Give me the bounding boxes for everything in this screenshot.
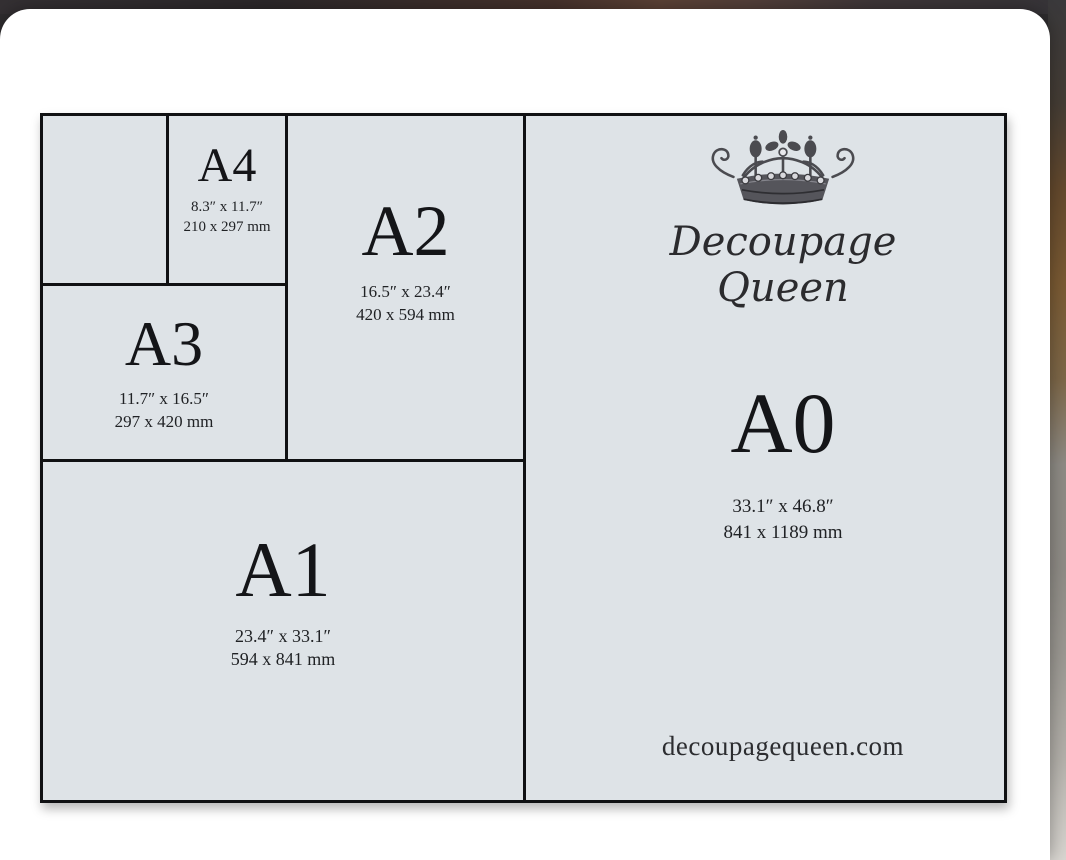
cell-a1: A1 23.4″ x 33.1″ 594 x 841 mm [43, 462, 523, 800]
product-image-card: A4 8.3″ x 11.7″ 210 x 297 mm A3 11.7″ x … [0, 9, 1050, 860]
a3-size-label: A3 [125, 312, 203, 376]
a4-mm: 210 x 297 mm [183, 218, 270, 238]
screen: A4 8.3″ x 11.7″ 210 x 297 mm A3 11.7″ x … [0, 0, 1066, 860]
a3-dimensions: 11.7″ x 16.5″ 297 x 420 mm [115, 388, 214, 432]
cell-a2: A2 16.5″ x 23.4″ 420 x 594 mm [288, 116, 523, 459]
a0-inches: 33.1″ x 46.8″ [723, 494, 842, 520]
cell-a3: A3 11.7″ x 16.5″ 297 x 420 mm [43, 286, 285, 459]
a1-dimensions: 23.4″ x 33.1″ 594 x 841 mm [231, 625, 336, 672]
a1-inches: 23.4″ x 33.1″ [231, 625, 336, 648]
cell-a4: A4 8.3″ x 11.7″ 210 x 297 mm [169, 116, 285, 283]
brand-website: decoupagequeen.com [662, 731, 904, 762]
paper-size-chart: A4 8.3″ x 11.7″ 210 x 297 mm A3 11.7″ x … [40, 113, 1007, 803]
a4-dimensions: 8.3″ x 11.7″ 210 x 297 mm [183, 198, 270, 237]
brand-name-line1: Decoupage [670, 222, 897, 262]
background-right-strip [1048, 0, 1066, 860]
a2-inches: 16.5″ x 23.4″ [356, 281, 455, 303]
a2-mm: 420 x 594 mm [356, 304, 455, 326]
a4-inches: 8.3″ x 11.7″ [183, 198, 270, 218]
chart-inner: A4 8.3″ x 11.7″ 210 x 297 mm A3 11.7″ x … [43, 116, 1004, 800]
a4-size-label: A4 [198, 142, 257, 190]
cell-a0: Decoupage Queen A0 33.1″ x 46.8″ 841 x 1… [526, 116, 1004, 800]
a1-size-label: A1 [235, 531, 330, 609]
cell-blank [43, 116, 166, 283]
crown-icon [689, 124, 877, 218]
a3-mm: 297 x 420 mm [115, 411, 214, 433]
a0-size-label: A0 [730, 380, 835, 466]
a2-dimensions: 16.5″ x 23.4″ 420 x 594 mm [356, 281, 455, 325]
a0-mm: 841 x 1189 mm [723, 520, 842, 546]
brand-name-line2: Queen [717, 268, 849, 308]
a2-size-label: A2 [362, 195, 450, 267]
a0-dimensions: 33.1″ x 46.8″ 841 x 1189 mm [723, 494, 842, 545]
a3-inches: 11.7″ x 16.5″ [115, 388, 214, 410]
a1-mm: 594 x 841 mm [231, 648, 336, 671]
